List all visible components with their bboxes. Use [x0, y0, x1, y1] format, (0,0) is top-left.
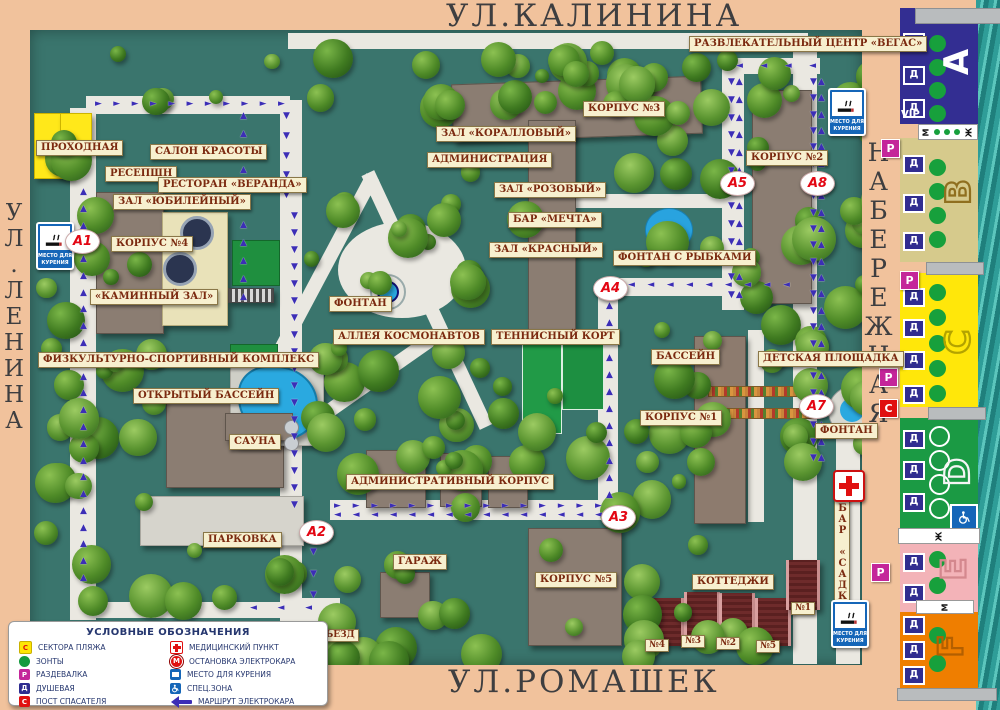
- cigarette-icon: [835, 604, 865, 628]
- tree: [461, 634, 502, 665]
- shower-badge: Д: [903, 666, 925, 685]
- tree: [368, 271, 392, 295]
- sea-water: [976, 0, 1000, 710]
- map-label-detskaya: ДЕТСКАЯ ПЛОЩАДКА: [758, 351, 904, 367]
- wc-bar: Ж: [898, 528, 980, 544]
- tree: [326, 641, 359, 665]
- lifeguard-badge: С: [879, 399, 898, 418]
- tree: [614, 153, 654, 193]
- map-label-cottage-3: №3: [681, 635, 705, 648]
- cross-icon: [839, 483, 859, 489]
- shower-badge: Д: [903, 493, 925, 512]
- route-arrows: ▼▼▼: [310, 548, 332, 600]
- tree: [165, 582, 202, 619]
- map-label-vegas: РАЗВЛЕКАТЕЛЬНЫЙ ЦЕНТР «ВЕГАС»: [689, 36, 927, 52]
- tree: [563, 61, 589, 87]
- shower-badge: Д: [903, 194, 925, 213]
- smoking-icon: [170, 669, 181, 680]
- tree: [660, 158, 692, 190]
- map-label-mechta: БАР «МЕЧТА»: [508, 212, 602, 228]
- umbrella-dot: [929, 284, 946, 301]
- tree: [840, 197, 862, 225]
- legend-item-shower: ДДУШЕВАЯ: [19, 683, 170, 694]
- umbrella-dot: [929, 105, 946, 122]
- smoking-sign-label: МЕСТО ДЛЯ КУРЕНИЯ: [38, 252, 72, 268]
- sector-letter-С: С: [938, 330, 978, 355]
- cigarette-icon: [832, 92, 862, 116]
- map-label-korpus3: КОРПУС №3: [583, 101, 665, 117]
- tree: [547, 388, 563, 404]
- sector-letter-А: А: [937, 49, 977, 75]
- umbrella-dot: [929, 498, 950, 519]
- map-label-cottage-4: №4: [645, 639, 669, 652]
- umbrella-dot: [929, 385, 946, 402]
- building-corp2: [752, 90, 812, 304]
- tree: [439, 598, 470, 629]
- umbrella-dot: [929, 426, 950, 447]
- marker-а3: А3: [601, 505, 636, 530]
- umbrella-dot: [929, 231, 946, 248]
- tree: [488, 398, 519, 429]
- shower-badge: Д: [903, 385, 925, 404]
- map-label-korpus4: КОРПУС №4: [111, 236, 193, 252]
- smoking-sign-label: МЕСТО ДЛЯ КУРЕНИЯ: [833, 630, 867, 646]
- tree: [313, 39, 352, 78]
- legend: УСЛОВНЫЕ ОБОЗНАЧЕНИЯ ССЕКТОРА ПЛЯЖАЗОНТЫ…: [8, 621, 328, 706]
- legend-item-electrocar-route: МАРШРУТ ЭЛЕКТРОКАРА: [170, 696, 321, 707]
- tree: [391, 221, 407, 237]
- legend-item-label: СЕКТОРА ПЛЯЖА: [38, 643, 106, 652]
- sector-letter-В: В: [939, 179, 979, 205]
- shower-badge: Д: [903, 553, 925, 572]
- wc-letter: Ж: [964, 127, 973, 137]
- tree: [34, 521, 58, 545]
- map-label-korpus1: КОРПУС №1: [640, 410, 722, 426]
- vip-label: VIP: [901, 109, 920, 120]
- tree: [636, 451, 658, 473]
- electrocar-route-icon: [174, 700, 192, 704]
- tree: [688, 535, 708, 555]
- legend-item-beach-sector: ССЕКТОРА ПЛЯЖА: [19, 642, 170, 653]
- map-label-salon: САЛОН КРАСОТЫ: [150, 144, 267, 160]
- legend-item-label: МАРШРУТ ЭЛЕКТРОКАРА: [198, 697, 294, 706]
- legend-item-changing-room: РРАЗДЕВАЛКА: [19, 669, 170, 680]
- electrocar-stop-icon: М: [170, 655, 183, 668]
- sector-letter-D: D: [938, 458, 978, 486]
- smoking-sign: МЕСТО ДЛЯ КУРЕНИЯ: [828, 88, 866, 136]
- shower-badge: Д: [903, 319, 925, 338]
- shower-badge: Д: [903, 155, 925, 174]
- umbrella-dot: [929, 360, 946, 377]
- wc-bar: МЖ: [918, 124, 978, 140]
- tree: [539, 538, 563, 562]
- legend-item-label: МЕСТО ДЛЯ КУРЕНИЯ: [187, 670, 271, 679]
- shower-badge: Д: [903, 66, 925, 85]
- beach-sector-icon: С: [19, 641, 32, 654]
- tree: [535, 69, 549, 83]
- map-label-korall: ЗАЛ «КОРАЛЛОВЫЙ»: [436, 126, 576, 142]
- tree: [334, 566, 361, 593]
- pier: [926, 262, 984, 275]
- marker-а7: А7: [799, 394, 834, 419]
- wheelchair-sign: [950, 504, 978, 530]
- wc-letter: М: [941, 603, 950, 611]
- tree: [422, 436, 445, 459]
- map-label-sport: ФИЗКУЛЬТУРНО-СПОРТИВНЫЙ КОМПЛЕКС: [38, 352, 319, 368]
- tree: [672, 474, 687, 489]
- pier: [897, 688, 997, 701]
- tree: [212, 585, 237, 610]
- map-label-korpus2: КОРПУС №2: [746, 150, 828, 166]
- umbrella-dot: [929, 159, 946, 176]
- tree: [450, 264, 486, 300]
- map-label-alleya: АЛЛЕЯ КОСМОНАВТОВ: [333, 329, 485, 345]
- legend-item-lifeguard: СПОСТ СПАСАТЕЛЯ: [19, 696, 170, 707]
- wc-bar: М: [916, 600, 974, 614]
- tree: [783, 85, 800, 102]
- shower-badge: Д: [903, 641, 925, 660]
- legend-item-label: СПЕЦ.ЗОНА: [187, 684, 232, 693]
- tree: [470, 358, 489, 377]
- map-label-korpus5: КОРПУС №5: [535, 572, 617, 588]
- pier: [915, 8, 1000, 24]
- pier: [928, 407, 986, 420]
- map-label-krasny: ЗАЛ «КРАСНЫЙ»: [489, 242, 603, 258]
- marker-а2: А2: [299, 520, 334, 545]
- umbrella-dot: [929, 207, 946, 224]
- resort-map: ►►►►►►►►►►►◄◄◄◄▼▼▼▼▼▲▲▲▲▲▲▲▲▲▲▲▲▲▲▲▲▲▲▲▲…: [0, 0, 1000, 710]
- map-label-sauna: САУНА: [229, 434, 281, 450]
- shower-badge: Д: [903, 430, 925, 449]
- changing-room-badge: Р: [871, 563, 890, 582]
- map-label-fontan-center: ФОНТАН: [329, 296, 392, 312]
- map-label-yubileiny: ЗАЛ «ЮБИЛЕЙНЫЙ»: [113, 194, 251, 210]
- tree: [518, 413, 556, 451]
- legend-item-label: ДУШЕВАЯ: [36, 684, 75, 693]
- tennis-court-2: [562, 344, 604, 410]
- medical-icon: [170, 641, 183, 654]
- shower-badge: Д: [903, 232, 925, 251]
- marker-а1: А1: [65, 229, 100, 254]
- marker-а8: А8: [800, 171, 835, 196]
- map-label-bassein: БАССЕЙН: [651, 349, 720, 365]
- tree: [590, 41, 614, 65]
- sector-letter-Е: Е: [935, 557, 975, 580]
- map-label-tennis: ТЕННИСНЫЙ КОРТ: [491, 329, 620, 345]
- route-arrows: ►►►►►►►►►►►►►►►◄◄◄◄◄◄◄◄◄◄◄◄◄◄◄: [334, 502, 602, 522]
- tree: [493, 377, 511, 395]
- legend-title: УСЛОВНЫЕ ОБОЗНАЧЕНИЯ: [9, 627, 327, 638]
- umbrella-icon: [19, 656, 30, 667]
- wc-letter: М: [922, 128, 931, 136]
- map-label-admin: АДМИНИСТРАЦИЯ: [427, 152, 552, 168]
- legend-item-smoking: МЕСТО ДЛЯ КУРЕНИЯ: [170, 669, 321, 680]
- legend-item-special-zone: СПЕЦ.ЗОНА: [170, 683, 321, 694]
- tree: [412, 51, 441, 80]
- tree: [674, 603, 692, 621]
- tree: [586, 422, 607, 443]
- tree: [264, 54, 279, 69]
- tree: [566, 436, 610, 480]
- shower-badge: Д: [903, 616, 925, 635]
- smoking-sign: МЕСТО ДЛЯ КУРЕНИЯ: [831, 600, 869, 648]
- map-label-fontan-rybki: ФОНТАН С РЫБКАМИ: [613, 250, 756, 266]
- tree: [703, 331, 722, 350]
- changing-room-badge: Р: [900, 271, 919, 290]
- map-label-prohodnaya: ПРОХОДНАЯ: [36, 140, 123, 156]
- tree: [358, 350, 400, 392]
- legend-item-label: ОСТАНОВКА ЭЛЕКТРОКАРА: [189, 657, 295, 666]
- tree: [119, 419, 156, 456]
- shower-badge: Д: [903, 288, 925, 307]
- wc-letter: Ж: [934, 531, 943, 541]
- courtyard-fountain-2: [163, 252, 197, 286]
- lifeguard-icon: С: [19, 696, 30, 707]
- legend-item-umbrella: ЗОНТЫ: [19, 656, 170, 667]
- legend-item-label: ПОСТ СПАСАТЕЛЯ: [36, 697, 106, 706]
- smoking-sign-label: МЕСТО ДЛЯ КУРЕНИЯ: [830, 118, 864, 134]
- map-label-admin-korpus: АДМИНИСТРАТИВНЫЙ КОРПУС: [346, 474, 554, 490]
- map-label-cottages: КОТТЕДЖИ: [692, 574, 774, 590]
- shower-badge: Д: [903, 461, 925, 480]
- map-label-fontan-right: ФОНТАН: [815, 423, 878, 439]
- street-romashek: УЛ.РОМАШЕК: [448, 664, 720, 700]
- tree: [427, 203, 461, 237]
- tree: [687, 448, 715, 476]
- map-label-garage: ГАРАЖ: [393, 554, 447, 570]
- umbrella-dot: [929, 82, 946, 99]
- tree: [619, 66, 656, 103]
- street-kalinina: УЛ.КАЛИНИНА: [446, 0, 742, 34]
- tree: [654, 322, 670, 338]
- changing-room-icon: Р: [19, 669, 30, 680]
- tree: [666, 101, 690, 125]
- map-label-cottage-5: №5: [756, 640, 780, 653]
- tree: [693, 89, 730, 126]
- legend-item-label: МЕДИЦИНСКИЙ ПУНКТ: [189, 643, 279, 652]
- legend-item-label: РАЗДЕВАЛКА: [36, 670, 87, 679]
- tree: [187, 543, 202, 558]
- map-label-parking: ПАРКОВКА: [203, 532, 282, 548]
- umbrella-dot: [929, 309, 946, 326]
- legend-item-electrocar-stop: МОСТАНОВКА ЭЛЕКТРОКАРА: [170, 656, 321, 667]
- map-label-cottage-2: №2: [716, 637, 740, 650]
- special-zone-icon: [170, 683, 181, 694]
- legend-item-medical: МЕДИЦИНСКИЙ ПУНКТ: [170, 642, 321, 653]
- tree: [445, 452, 463, 470]
- tree: [103, 269, 119, 285]
- map-label-kaminny: «КАМИННЫЙ ЗАЛ»: [90, 289, 218, 305]
- street-lenina: УЛ.ЛЕНИНА: [2, 200, 25, 434]
- shower-icon: Д: [19, 683, 30, 694]
- tree: [682, 53, 711, 82]
- tree: [354, 408, 376, 430]
- tree: [36, 278, 57, 299]
- marker-а5: А5: [720, 171, 755, 196]
- changing-room-badge: Р: [879, 368, 898, 387]
- map-label-cottage-1: №1: [791, 602, 815, 615]
- tree: [418, 376, 461, 419]
- tree: [110, 46, 126, 62]
- map-label-veranda: РЕСТОРАН «ВЕРАНДА»: [158, 177, 307, 193]
- shower-badge: Д: [903, 351, 925, 370]
- map-label-openpool: ОТКРЫТЫЙ БАССЕЙН: [133, 388, 279, 404]
- tree: [307, 84, 335, 112]
- route-arrows: ◄◄◄◄◄◄◄◄◄: [628, 281, 790, 301]
- marker-а4: А4: [593, 276, 628, 301]
- changing-room-badge: Р: [881, 139, 900, 158]
- medical-point-sign: [833, 470, 865, 502]
- map-label-rozovy: ЗАЛ «РОЗОВЫЙ»: [494, 182, 606, 198]
- legend-item-label: ЗОНТЫ: [36, 657, 64, 666]
- sector-letter-F: F: [932, 634, 972, 657]
